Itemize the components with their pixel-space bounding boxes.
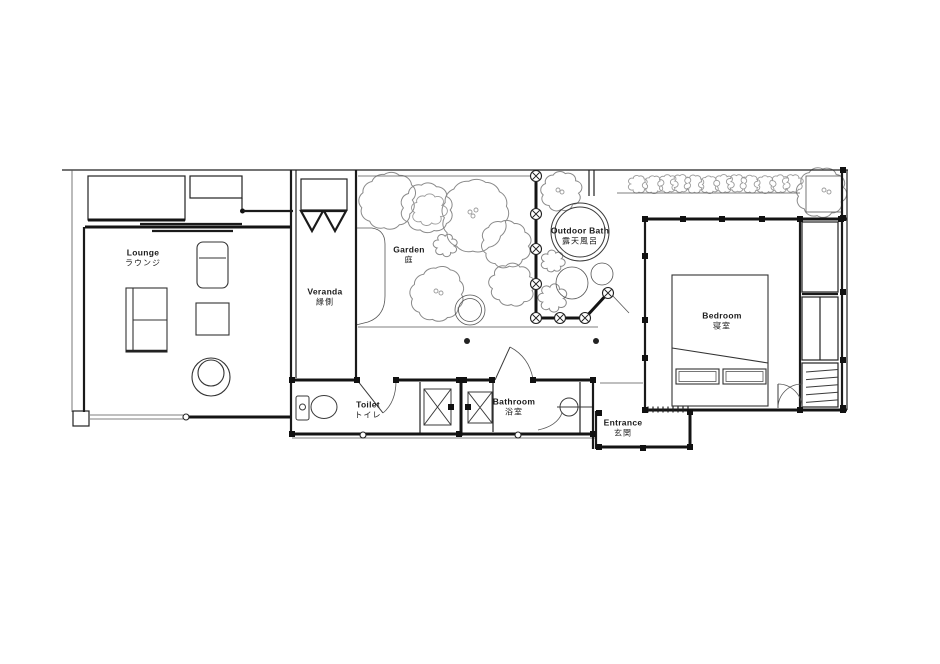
- folding-door-symbol: [324, 211, 346, 231]
- garden-rock: [556, 267, 588, 299]
- wall-node: [515, 432, 521, 438]
- tree: [359, 172, 416, 229]
- toilet-bowl: [311, 396, 337, 419]
- bathroom-door-leaf: [495, 347, 510, 380]
- bed: [672, 275, 768, 406]
- post: [456, 431, 462, 437]
- armchair: [197, 242, 228, 288]
- post: [393, 377, 399, 383]
- post: [840, 407, 846, 413]
- room-label-lounge: Loungeラウンジ: [125, 247, 161, 268]
- room-label-entrance: Entrance玄関: [604, 417, 643, 438]
- room-label-garden: Garden庭: [393, 244, 425, 265]
- post: [640, 445, 646, 451]
- tree: [433, 234, 457, 256]
- post: [759, 216, 765, 222]
- floorplan-canvas: Loungeラウンジ Veranda縁側 Garden庭 Outdoor Bat…: [0, 0, 940, 664]
- deck-post-dot: [593, 338, 599, 344]
- room-label-toilet: Toiletトイレ: [355, 399, 382, 420]
- tree: [541, 172, 582, 211]
- post: [642, 216, 648, 222]
- wall-node: [183, 414, 189, 420]
- bath-fence: [531, 171, 614, 324]
- post: [530, 377, 536, 383]
- post: [642, 355, 648, 361]
- post: [642, 407, 648, 413]
- garden-features: [356, 176, 842, 344]
- post: [289, 377, 295, 383]
- garden-rock: [591, 263, 613, 285]
- room-label-bathroom: Bathroom浴室: [493, 396, 536, 417]
- post: [642, 253, 648, 259]
- post: [840, 289, 846, 295]
- post: [797, 216, 803, 222]
- tree: [541, 250, 565, 272]
- post: [596, 444, 602, 450]
- deck-post-dot: [464, 338, 470, 344]
- tree: [796, 168, 846, 218]
- bathroom-door-swing: [510, 347, 533, 379]
- toilet-door-swing: [383, 381, 396, 413]
- folding-door-symbol: [301, 211, 323, 231]
- post: [687, 409, 693, 415]
- post: [797, 407, 803, 413]
- corner-post: [73, 411, 89, 426]
- post: [590, 377, 596, 383]
- tub-chair: [192, 358, 230, 396]
- garden-stone: [356, 228, 385, 325]
- floorplan-drawing: [0, 0, 940, 664]
- closet: [88, 176, 185, 220]
- post: [461, 377, 467, 383]
- post: [840, 167, 846, 173]
- post: [719, 216, 725, 222]
- tree: [489, 263, 536, 306]
- shoe-cabinet-hatch: [806, 370, 838, 403]
- room-label-veranda: Veranda縁側: [307, 286, 342, 307]
- water-basin-inner: [459, 299, 482, 322]
- post: [354, 377, 360, 383]
- water-basin-outer: [455, 295, 485, 325]
- post: [687, 444, 693, 450]
- cabinet: [190, 176, 242, 198]
- fixtures-layer: [296, 389, 592, 430]
- post: [489, 377, 495, 383]
- toilet-tank: [296, 396, 309, 420]
- post: [590, 431, 596, 437]
- post: [840, 215, 846, 221]
- bed-fold-line: [672, 348, 768, 363]
- hedge-shrub: [684, 175, 704, 193]
- tree: [538, 284, 567, 312]
- courtyard-planter: [806, 176, 842, 212]
- post: [840, 357, 846, 363]
- post: [596, 410, 602, 416]
- wall-node: [360, 432, 366, 438]
- veranda-cabinet: [301, 179, 347, 210]
- post: [289, 431, 295, 437]
- room-label-bedroom: Bedroom寝室: [702, 310, 741, 331]
- hedge-shrub: [698, 176, 719, 194]
- post: [642, 317, 648, 323]
- toilet-flush-knob: [300, 404, 306, 410]
- deck-corner-edge: [612, 295, 629, 313]
- side-table: [196, 303, 229, 335]
- post: [680, 216, 686, 222]
- hedge-shrub: [628, 176, 647, 194]
- closet: [802, 222, 838, 292]
- room-label-outdoor-bath: Outdoor Bath露天風呂: [551, 225, 609, 246]
